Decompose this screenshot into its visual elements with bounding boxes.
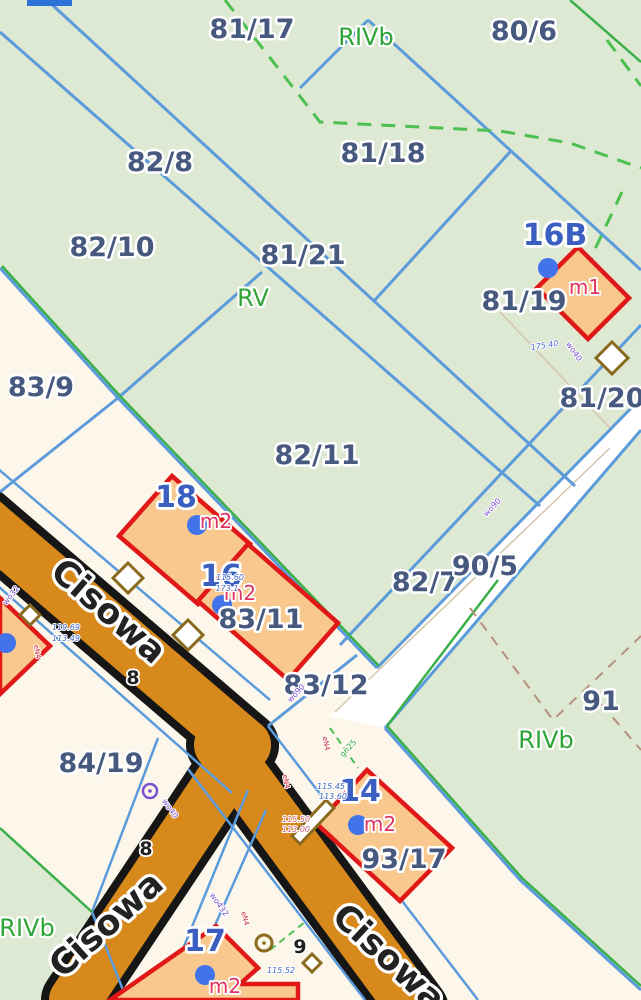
house-number-label: 17 [184, 924, 226, 959]
elevation-label: 113.60 [319, 792, 347, 801]
parcel-label: 80/6 [491, 16, 557, 47]
house-number-label: 18 [155, 480, 197, 515]
elevation-label: 113.00 [282, 825, 310, 834]
building-type-label: m2 [200, 509, 232, 533]
parcel-label: 81/19 [481, 286, 566, 317]
elevation-label: 173.1 [216, 584, 239, 593]
parcel-label: 81/21 [260, 240, 345, 271]
utility-symbol [148, 789, 152, 793]
parcel-label: 90/5 [452, 551, 518, 582]
address-number-label: 9 [293, 936, 306, 958]
parcel-label: 83/11 [218, 604, 303, 635]
parcel-label: 93/17 [361, 844, 446, 875]
parcel-label: 82/11 [274, 440, 359, 471]
elevation-label: 113.49 [52, 634, 80, 643]
address-number-label: 8 [139, 838, 152, 860]
cadastral-map-viewport[interactable]: 81/1780/682/881/1882/1081/2181/1981/2082… [0, 0, 641, 1000]
elevation-label: 115.45 [317, 782, 345, 791]
soil-class-label: RIVb [518, 726, 573, 754]
map-label-partial [27, 0, 72, 6]
house-number-label: 16B [523, 218, 588, 253]
soil-class-label: RV [237, 284, 269, 312]
elevation-label: 115.52 [267, 966, 295, 975]
parcel-label: 81/17 [209, 14, 294, 45]
parcel-label: 91 [582, 686, 620, 717]
parcel-label: 81/20 [559, 383, 641, 414]
parcel-label: 81/18 [340, 138, 425, 169]
parcel-label: 82/10 [69, 232, 154, 263]
parcel-label: 83/9 [8, 372, 74, 403]
elevation-label: 119.69 [52, 623, 80, 632]
address-point-dot [538, 258, 558, 278]
soil-class-label: RIVb [0, 914, 55, 942]
address-number-label: 8 [126, 667, 139, 689]
elevation-label: 115.50 [282, 815, 310, 824]
parcel-label: 82/8 [127, 147, 193, 178]
well-symbol [262, 941, 266, 945]
building-type-label: m1 [569, 275, 601, 299]
cadastral-map-canvas[interactable]: 81/1780/682/881/1882/1081/2181/1981/2082… [0, 0, 641, 1000]
parcel-label: 84/19 [58, 748, 143, 779]
parcel-label: 82/7 [392, 567, 458, 598]
building-type-label: m2 [364, 812, 396, 836]
building-type-label: m2 [209, 974, 241, 998]
elevation-label: 115.60 [216, 573, 244, 582]
soil-class-label: RIVb [338, 23, 393, 51]
